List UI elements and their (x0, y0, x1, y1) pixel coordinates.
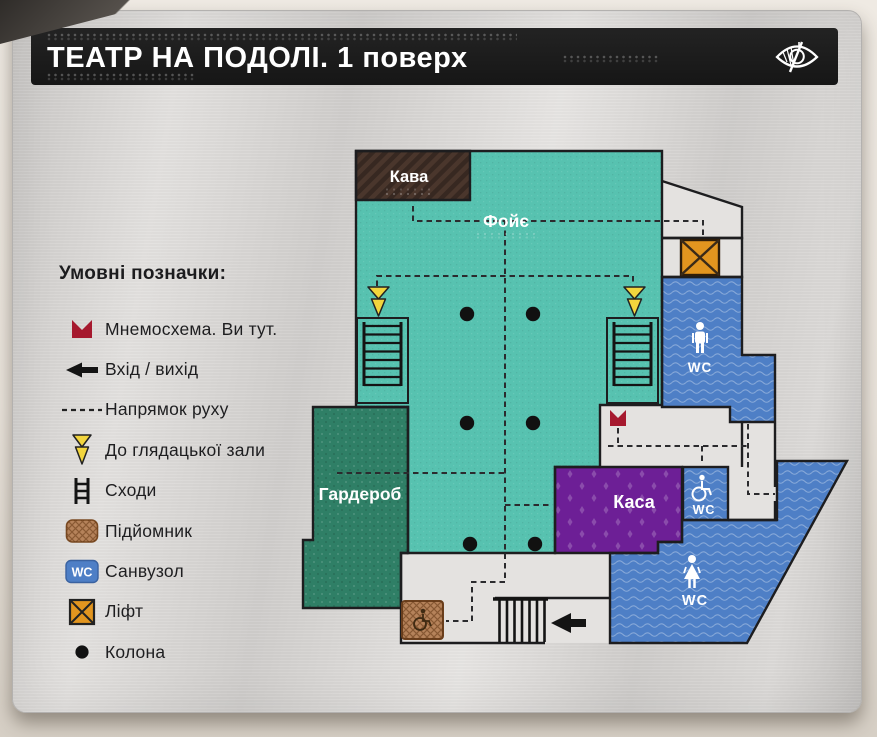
legend-item-lift: Підйомник (59, 511, 324, 551)
legend: Умовні позначки: Мнемосхема. Ви тут. Вхі… (59, 263, 324, 673)
to-auditorium-bolt-icon (59, 434, 105, 466)
elevator-icon (59, 598, 105, 626)
entrance-exit-arrow-icon (59, 361, 105, 379)
wc-icon: WC (59, 559, 105, 584)
header-bar: ТЕАТР НА ПОДОЛІ. 1 поверх (31, 28, 838, 85)
photo-backdrop: ТЕАТР НА ПОДОЛІ. 1 поверх Умовні позначк… (0, 0, 877, 737)
legend-item-auditorium: До глядацької зали (59, 430, 324, 470)
legend-item-elevator: Ліфт (59, 592, 324, 632)
sign-title: ТЕАТР НА ПОДОЛІ. 1 поверх (47, 42, 468, 75)
legend-item-entrance: Вхід / вихід (59, 349, 324, 389)
sign-board: ТЕАТР НА ПОДОЛІ. 1 поверх Умовні позначк… (12, 10, 862, 713)
legend-item-column: Колона (59, 632, 324, 672)
braille-strip (563, 55, 659, 63)
legend-item-stairs: Сходи (59, 471, 324, 511)
platform-lift-icon (59, 518, 105, 544)
legend-item-mnemoscheme: Мнемосхема. Ви тут. (59, 309, 324, 349)
legend-title: Умовні позначки: (59, 263, 324, 285)
column-icon (59, 644, 105, 660)
svg-text:WC: WC (72, 566, 93, 580)
you-are-here-marker-icon (59, 319, 105, 339)
stairs-icon (59, 476, 105, 506)
legend-item-wc: WC Санвузол (59, 551, 324, 591)
legend-item-direction: Напрямок руху (59, 390, 324, 430)
braille-strip (47, 33, 517, 41)
low-vision-icon (774, 41, 820, 73)
direction-dashes-icon (59, 407, 105, 413)
